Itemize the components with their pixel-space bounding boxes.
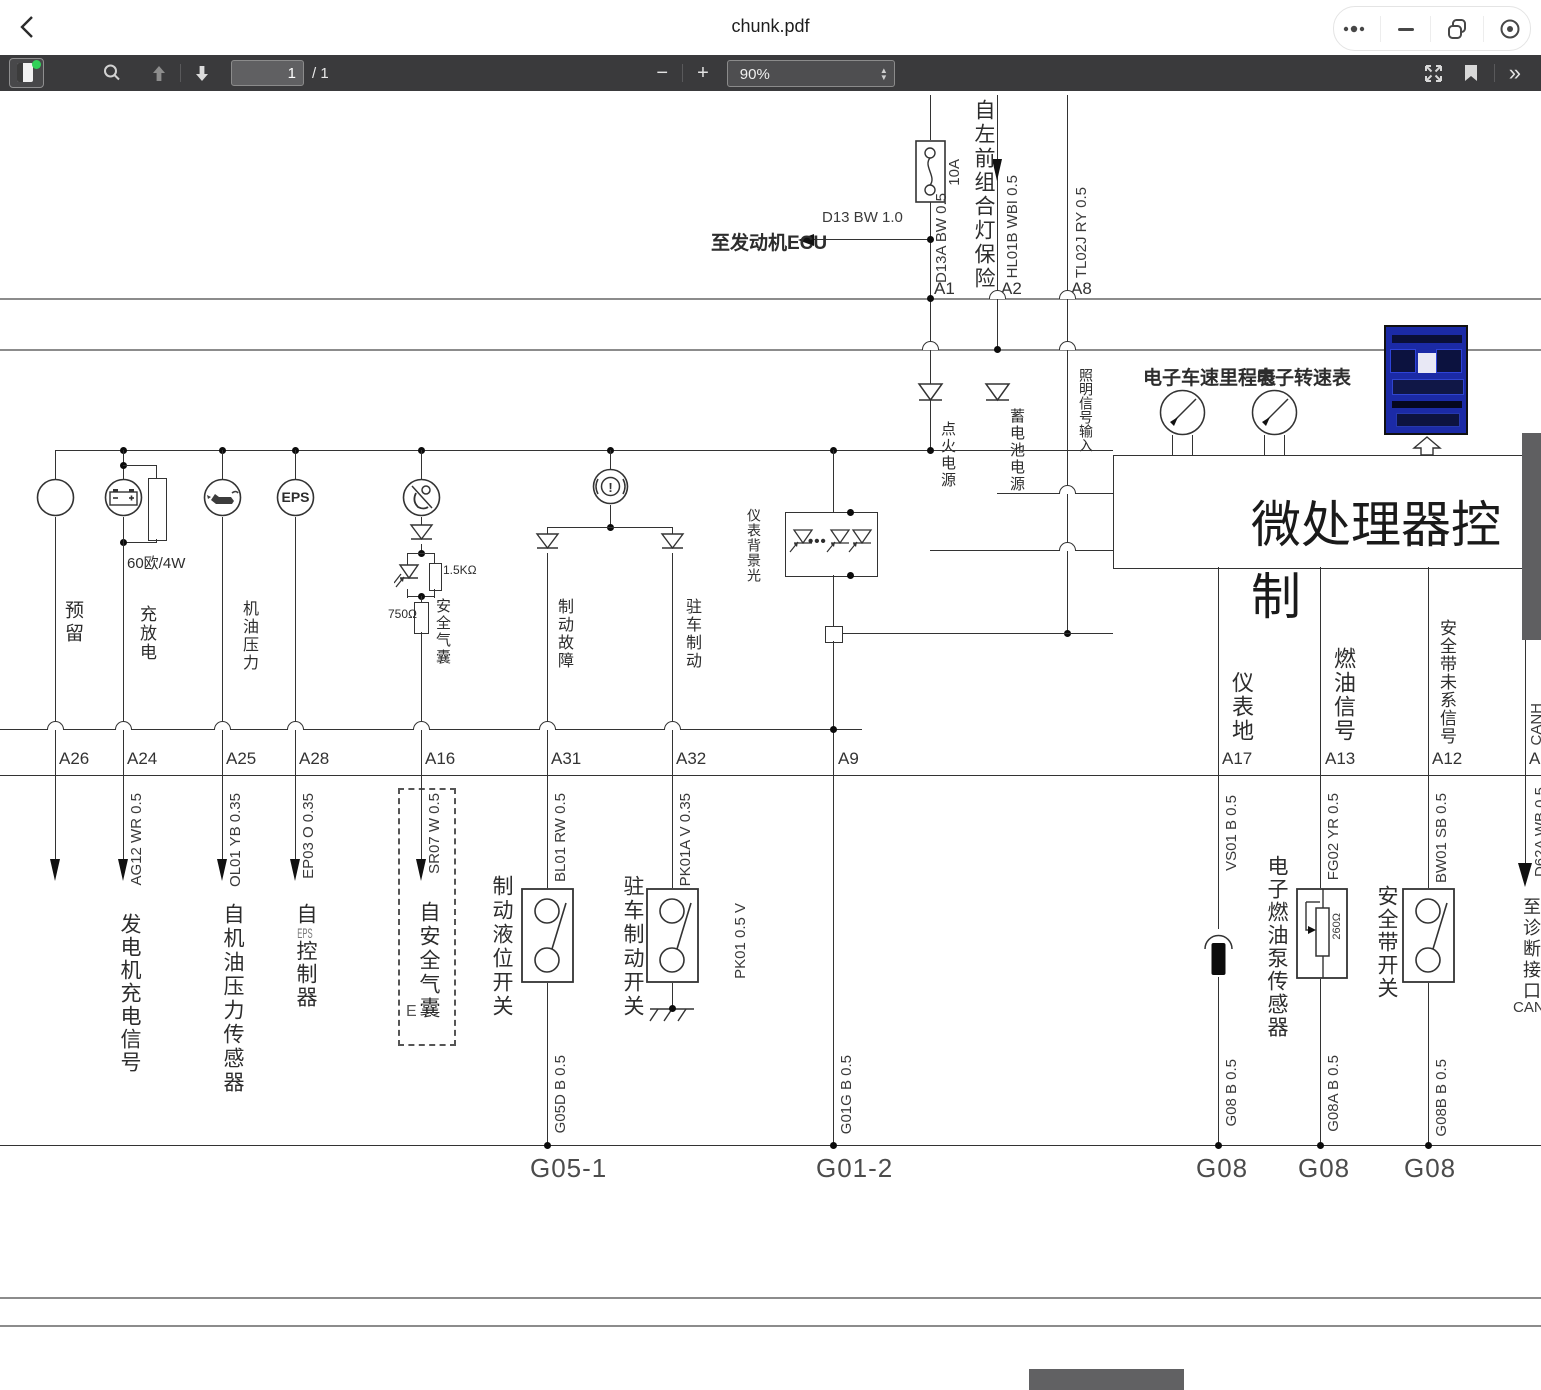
parking-switch-label: 驻车制动开关: [617, 875, 647, 1019]
seatbelt-signal-label: 安全带未系信号: [1434, 619, 1459, 745]
diode-icon: [535, 532, 560, 553]
ignition-rail: [0, 298, 1541, 300]
more-icon[interactable]: [1341, 16, 1367, 42]
pin-a24: A24: [127, 749, 157, 769]
ignition-power-label: 点火电源: [937, 421, 958, 489]
illumination-input-label: 照明信号输入: [1076, 368, 1096, 452]
diode-icon: [917, 382, 944, 405]
resistor-1k5: [429, 563, 442, 591]
eps-ctrl-label: 自EPS控制器: [290, 903, 320, 1009]
cluster-photo: [1384, 325, 1468, 435]
resistor-750-label: 750Ω: [388, 607, 417, 621]
battery-lamp-icon: [104, 478, 143, 517]
led-dots: •••: [808, 533, 827, 550]
parking-brake-label: 驻车制动: [679, 598, 703, 670]
wire-label-bl01: BL01 RW 0.5: [553, 793, 569, 882]
bottom-frame-line-2: [0, 1325, 1541, 1327]
oil-pressure-label: 机油压力: [236, 600, 260, 672]
wire-label-g08b: G08B B 0.5: [1434, 1059, 1450, 1137]
resistor-60: [148, 478, 167, 541]
diagnostic-label: 至诊断接口: [1518, 897, 1541, 1002]
ground-g08-3: G08: [1404, 1153, 1456, 1184]
fuel-signal-label: 燃油信号: [1327, 647, 1359, 743]
pin-a28: A28: [299, 749, 329, 769]
pin-a32: A32: [676, 749, 706, 769]
brake-level-switch: [521, 888, 574, 983]
wire-label-g08a: G08A B 0.5: [1326, 1055, 1342, 1132]
vertical-scrollbar-thumb[interactable]: [1522, 433, 1541, 640]
ground-g01-2: G01-2: [816, 1153, 893, 1184]
gen-signal-label: 发电机充电信号: [114, 913, 144, 1074]
minimize-icon[interactable]: [1395, 16, 1417, 42]
zoom-level-value: 90%: [740, 66, 770, 83]
pin-a26: A26: [59, 749, 89, 769]
backlight-label: 仪表背景光: [744, 508, 764, 583]
brake-lamp-icon: !: [592, 468, 629, 505]
prev-page-icon[interactable]: [144, 64, 174, 83]
wire-label-g05d: G05D B 0.5: [553, 1055, 569, 1133]
airbag-ecu-e: E: [406, 1003, 417, 1021]
bottom-frame-line-1: [0, 1297, 1541, 1299]
speedometer-gauge-icon: [1159, 389, 1206, 436]
wire-label-pk01: PK01 0.5 V: [733, 903, 749, 979]
oil-sensor-label: 自机油压力传感器: [217, 903, 247, 1095]
sidebar-icon: [17, 63, 33, 82]
wire-label-g01g: G01G B 0.5: [839, 1055, 855, 1134]
sidebar-toggle-button[interactable]: [9, 58, 44, 88]
ground-g08-1: G08: [1196, 1153, 1248, 1184]
parking-brake-switch: [646, 888, 699, 983]
wire-label-g08: G08 B 0.5: [1224, 1059, 1240, 1127]
wire-label-vs01: VS01 B 0.5: [1224, 795, 1240, 871]
arrow-down-icon: [1518, 863, 1532, 887]
wire-label-d62a: D62A WB 0.5: [1533, 787, 1541, 877]
pin-a25: A25: [226, 749, 256, 769]
pin-a17: A17: [1222, 749, 1252, 769]
seatbelt-switch-label: 安全带开关: [1371, 885, 1401, 1000]
airbag-ecu-label: 自安全气囊: [413, 901, 443, 1021]
pin-a13: A13: [1325, 749, 1355, 769]
wire-label-bw01: BW01 SB 0.5: [1434, 793, 1450, 883]
pdf-toolbar: / 1 − + 90% ▲▼ »: [0, 55, 1541, 92]
pin-a31: A31: [551, 749, 581, 769]
arrow-up-icon: [1412, 436, 1442, 456]
fullscreen-icon[interactable]: [1413, 63, 1454, 84]
led-icon: [848, 527, 874, 553]
pin-a1-top: A1: [934, 279, 955, 299]
wire-label-canh: CANH: [1529, 703, 1541, 746]
battery-rail: [0, 349, 1541, 351]
meter-ground-label: 仪表地: [1225, 671, 1257, 743]
page-number-input[interactable]: [231, 60, 304, 86]
eps-lamp-text: EPS: [281, 489, 310, 505]
airbag-label: 安全气囊: [432, 598, 453, 666]
pin-a1-right: A1: [1529, 749, 1541, 769]
diode-icon: [984, 382, 1011, 405]
zoom-level-select[interactable]: 90% ▲▼: [727, 60, 895, 87]
pin-a16: A16: [425, 749, 455, 769]
fuel-sensor-label: 电子燃油泵传感器: [1261, 855, 1291, 1039]
charge-label: 充放电: [134, 605, 159, 662]
svg-text:!: !: [608, 480, 612, 495]
search-icon[interactable]: [94, 63, 130, 83]
pin-a12: A12: [1432, 749, 1462, 769]
fuse-rating-label: 10A: [947, 159, 963, 186]
eps-text: EPS: [297, 926, 313, 940]
toolbar-more-button[interactable]: »: [1501, 63, 1529, 83]
wire-label-ep03: EP03 O 0.35: [301, 793, 317, 879]
mcu-label: 微处理器控制: [1251, 485, 1541, 629]
wire-label-ag12: AG12 WR 0.5: [129, 793, 145, 886]
reserved-label: 预留: [59, 600, 86, 646]
tachometer-gauge-icon: [1251, 389, 1298, 436]
restore-icon[interactable]: [1445, 16, 1469, 42]
resistor-260-label: 260Ω: [1332, 913, 1343, 940]
wire-label-fg02: FG02 YR 0.5: [1326, 793, 1342, 880]
ground-g05-1: G05-1: [530, 1153, 607, 1184]
tachometer-label: 电子转速表: [1256, 363, 1351, 390]
document-title: chunk.pdf: [0, 16, 1541, 37]
zoom-in-button[interactable]: +: [689, 63, 717, 83]
seatbelt-switch: [1402, 888, 1455, 983]
window-controls: [1333, 6, 1531, 51]
wire-label-sr07: SR07 W 0.5: [427, 793, 443, 874]
resistor-60-label: 60欧/4W: [127, 552, 185, 573]
ground-g08-2: G08: [1298, 1153, 1350, 1184]
pin-a9: A9: [838, 749, 859, 769]
bookmark-icon[interactable]: [1454, 64, 1488, 82]
front-lamp-fuse-label: 自左前组合灯保险: [968, 99, 998, 291]
wiring-diagram-page: 10A 至发动机ECU D13 BW 1.0 D13A BW 0.5 自左前组合…: [0, 91, 1541, 1390]
reserved-lamp-icon: [36, 478, 75, 517]
wire-label-tl02j: TL02J RY 0.5: [1074, 187, 1090, 278]
diode-icon: [660, 532, 685, 553]
resistor-1k5-label: 1.5KΩ: [443, 563, 477, 577]
airbag-lamp-icon: [402, 478, 441, 517]
wire-label-ol01: OL01 YB 0.35: [228, 793, 244, 887]
page-count: / 1: [312, 65, 329, 82]
wire-label-hl01b: HL01B WBI 0.5: [1005, 175, 1021, 278]
wire-label-d13: D13 BW 1.0: [822, 209, 903, 226]
next-page-icon[interactable]: [187, 64, 217, 83]
wire-label-canl: CANL: [1513, 999, 1541, 1016]
brake-fault-label: 制动故障: [551, 598, 575, 670]
zoom-out-button[interactable]: −: [648, 63, 676, 83]
horizontal-scrollbar-thumb[interactable]: [1029, 1369, 1184, 1390]
divider: [1430, 16, 1431, 42]
diode-icon: [409, 523, 434, 544]
to-engine-ecu-label: 至发动机ECU: [711, 228, 827, 255]
target-icon[interactable]: [1497, 16, 1523, 42]
single-pin-connector-icon: [1202, 929, 1235, 977]
divider: [1380, 16, 1381, 42]
wire-label-pk01a: PK01A V 0.35: [678, 793, 694, 886]
spinner-icon: ▲▼: [880, 61, 888, 88]
led-icon: [394, 563, 422, 589]
oil-lamp-icon: [203, 478, 242, 517]
divider: [1483, 16, 1484, 42]
wire-label-d13a: D13A BW 0.5: [934, 193, 950, 283]
brake-level-label: 制动液位开关: [486, 875, 516, 1019]
green-dot: [32, 60, 41, 69]
titlebar: chunk.pdf: [0, 0, 1541, 55]
